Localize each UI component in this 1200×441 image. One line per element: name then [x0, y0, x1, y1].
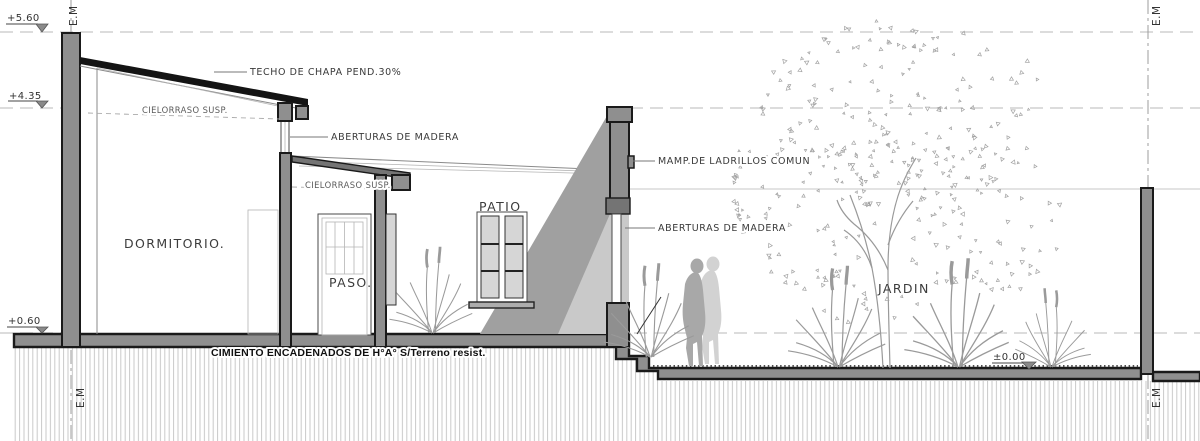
annotation-ceiling-dormitorio: CIELORRASO SUSP. [142, 105, 228, 115]
dormitorio-door-outline [248, 210, 278, 334]
annotation-foundation: CIMIENTO ENCADENADOS DE H°A° S/Terreno r… [211, 347, 486, 359]
elevation-marker-435: +4.35 [8, 91, 48, 108]
main-roof [80, 57, 308, 106]
right-wall-notch [628, 156, 634, 168]
roof-fascia [278, 103, 292, 121]
annotation-openings-patio: ABERTURAS DE MADERA [658, 223, 786, 234]
elevation-label-000: ±0.00 [993, 352, 1026, 363]
em-label-top-right: E.M [1151, 5, 1163, 26]
patio-window-sill [469, 302, 534, 308]
elevation-marker-060: +0.60 [7, 316, 48, 333]
boundary-wall [1141, 188, 1153, 374]
annotation-masonry: MAMP.DE LADRILLOS COMUN [658, 156, 810, 167]
reed-stick [637, 297, 661, 334]
paso-patio-column [375, 175, 386, 347]
tree-trunk [837, 158, 916, 368]
elevation-marker-560: +5.60 [6, 13, 48, 32]
room-label-paso: PASO. [329, 275, 373, 290]
em-label-bottom-right: E.M [1151, 387, 1163, 408]
elevation-label-435: +4.35 [9, 91, 42, 102]
em-label-top-left: E.M [68, 5, 80, 26]
section-drawing-canvas: TECHO DE CHAPA PEND.30% CIELORRASO SUSP.… [0, 0, 1200, 441]
elevation-arrow-560 [36, 24, 48, 32]
annotation-ceiling-paso: CIELORRASO SUSP. [305, 180, 391, 190]
person-figure [683, 257, 722, 367]
paso-glazed-door [386, 214, 396, 305]
paso-roof-fascia [392, 175, 410, 190]
elevation-arrow-435 [36, 101, 48, 108]
room-label-dormitorio: DORMITORIO. [124, 236, 225, 251]
right-wall-lintel-beam [606, 198, 630, 214]
right-wall-glazing [612, 214, 621, 303]
em-label-bottom-left: E.M [75, 387, 87, 408]
elevation-arrow-060 [36, 327, 48, 333]
neighbor-ground-strip [1153, 372, 1200, 381]
tree-foliage [731, 20, 1063, 326]
annotation-openings-paso: ABERTURAS DE MADERA [331, 132, 459, 143]
patio-window [469, 212, 534, 308]
elevation-label-560: +5.60 [7, 13, 40, 24]
middle-wall [280, 153, 291, 347]
annotation-roof: TECHO DE CHAPA PEND.30% [249, 67, 401, 78]
tree [731, 20, 1063, 368]
room-label-jardin: JARDIN [877, 281, 930, 296]
left-wall [62, 33, 80, 347]
elevation-label-060: +0.60 [8, 316, 41, 327]
room-label-patio: PATIO [479, 199, 521, 214]
roof-gutter [296, 106, 308, 119]
